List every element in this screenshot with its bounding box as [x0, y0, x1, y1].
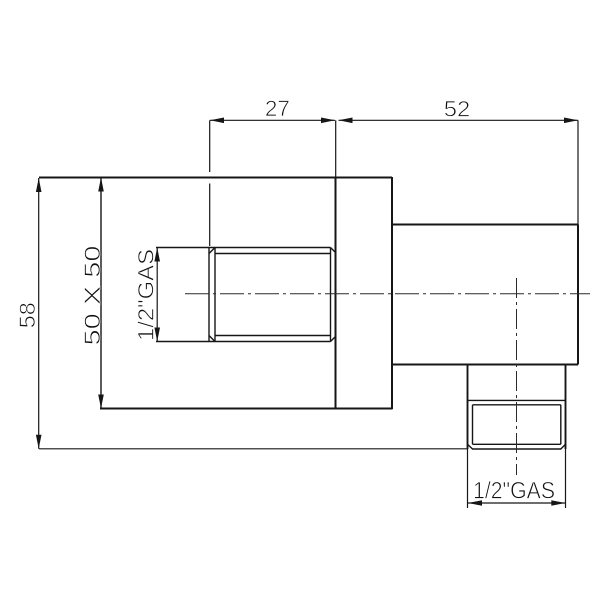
svg-text:27: 27: [265, 96, 290, 121]
svg-text:1/2"GAS: 1/2"GAS: [134, 249, 159, 341]
svg-text:58: 58: [15, 302, 40, 328]
svg-text:50 X 50: 50 X 50: [80, 246, 105, 346]
svg-text:1/2"GAS: 1/2"GAS: [473, 477, 555, 504]
svg-text:52: 52: [444, 97, 471, 122]
